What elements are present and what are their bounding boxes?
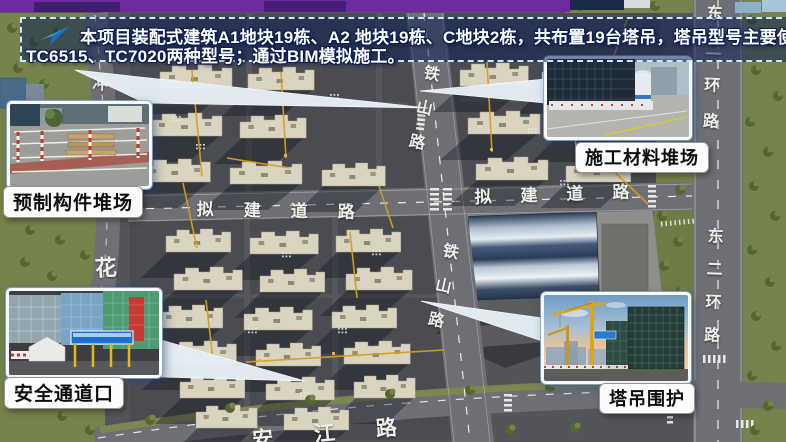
inset-crane-fence (541, 292, 691, 384)
safety-gate-photo (9, 291, 159, 375)
inset-material-yard (544, 56, 692, 140)
label-safety-gate: 安全通道口 (4, 377, 124, 409)
top-bar-dark-segment (34, 2, 120, 12)
label-material-yard: 施工材料堆场 (575, 142, 709, 173)
project-description-banner: 本项目装配式建筑A1地块19栋、A2 地块19栋、C地块2栋，共布置19台塔吊，… (20, 17, 786, 62)
inset-safety-gate (6, 288, 162, 378)
construction-site-overview-slide: 铁山路 铁山路 东二环路 东二环路 拟建道路 拟建道路 花 冲 安江路 (0, 0, 786, 442)
top-bar-building-silhouette (570, 0, 624, 10)
prefab-yard-photo (10, 104, 149, 186)
top-bar-dark-segment (264, 1, 346, 12)
label-crane-fence: 塔吊围护 (599, 383, 695, 414)
label-prefab-yard: 预制构件堆场 (3, 186, 143, 218)
banner-text-line2: TC6515、TC7020两种型号；通过BIM模拟施工。 (26, 42, 405, 67)
top-bar-building-silhouette (624, 0, 650, 8)
inset-prefab-yard (7, 101, 152, 189)
material-yard-photo (547, 59, 689, 137)
crane-fence-photo (544, 295, 688, 381)
